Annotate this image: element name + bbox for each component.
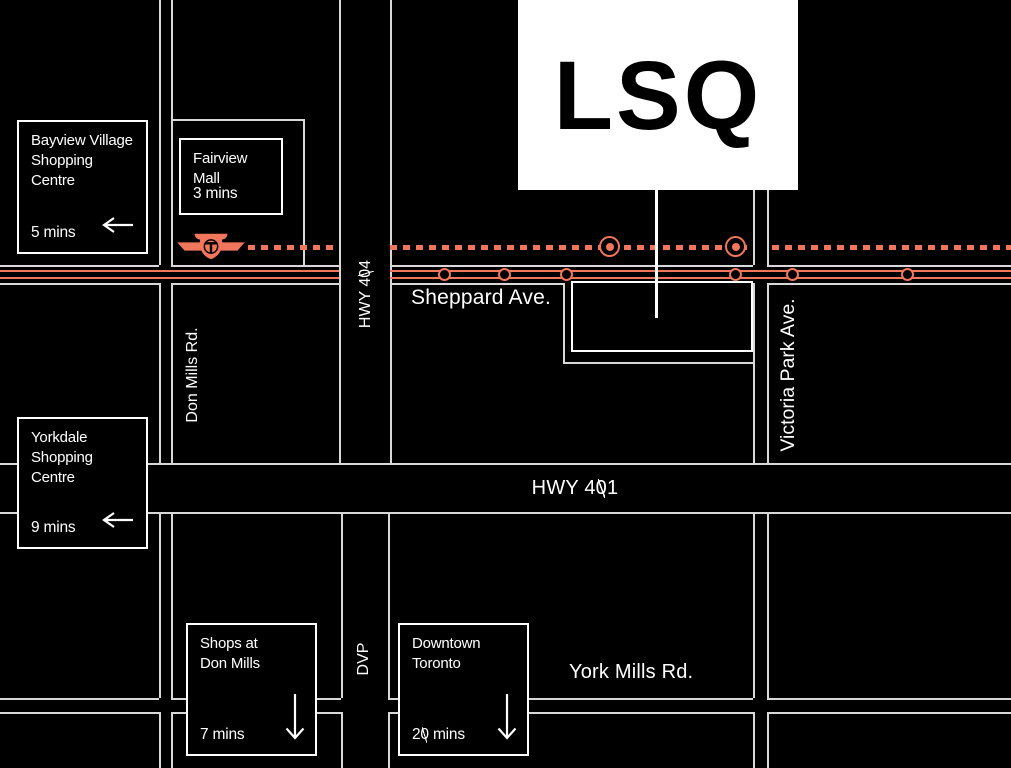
victoria-park-edge [753,190,755,265]
sheppard-ave-line-segment [390,270,1011,272]
road-segment [159,283,161,463]
victoria-park-edge [753,712,755,768]
york-mills-edge [0,698,159,700]
victoria-park-edge [767,712,769,768]
road-segment [303,119,305,266]
sheppard-edge [0,283,159,285]
destination-name: Shops at Don Mills [200,634,307,674]
sheppard-edge [390,265,753,267]
road-segment [159,712,161,768]
road-segment [563,283,565,362]
street-label-sheppard: Sheppard Ave. [411,286,551,310]
lsq-title-box: LSQ [518,0,798,190]
street-label-hwy401: HWY 401 [475,477,675,500]
street-label-don-mills: Don Mills Rd. [180,275,206,475]
hwy404-edge [339,0,341,463]
dvp-edge [388,512,390,698]
subway-line-segment [772,245,1011,250]
victoria-park-edge [767,512,769,698]
destination-name: Bayview Village Shopping Centre [31,131,138,190]
travel-time: 7 mins [200,726,244,744]
victoria-park-edge [753,512,755,698]
sheppard-edge [0,265,159,267]
subway-line-segment [248,245,339,250]
dvp-edge [341,712,343,768]
destination-card-fairview: Fairview Mall 3 mins [179,138,283,215]
road-segment [159,0,161,265]
travel-time: 20 mins [412,726,465,744]
subway-station-marker [599,236,620,257]
subway-station-marker [725,236,746,257]
street-label-hwy404: HWY 404 [353,194,379,394]
york-mills-edge [0,712,159,714]
stop-marker [560,268,573,281]
road-segment [171,0,173,265]
left-arrow-icon [102,216,134,239]
hwy401-edge [0,463,1011,465]
dvp-edge [341,512,343,698]
lsq-logo-text: LSQ [554,47,762,144]
street-label-dvp: DVP [351,559,377,759]
lsq-area-map: LSQ Sheppard Ave. HWY 401 York Mills Rd.… [0,0,1011,768]
lsq-site-outline [571,281,753,352]
road-segment [171,512,173,698]
destination-card-downtown: Downtown Toronto 20 mins [398,623,529,756]
destination-name: Downtown Toronto [412,634,519,674]
travel-time: 9 mins [31,519,75,537]
lsq-leader-line [655,190,658,318]
sheppard-ave-line-segment [0,277,339,279]
road-segment [563,362,753,364]
stop-marker [498,268,511,281]
road-segment [171,712,173,768]
road-segment [172,119,303,121]
ttc-logo [176,231,246,267]
victoria-park-edge [767,283,769,463]
street-label-victoria-park: Victoria Park Ave. [775,275,801,475]
sheppard-ave-line-segment [0,270,339,272]
stop-marker [729,268,742,281]
down-arrow-icon [497,694,517,746]
victoria-park-edge [753,283,755,463]
sheppard-edge [390,283,563,285]
hwy401-edge [0,512,1011,514]
destination-name: Yorkdale Shopping Centre [31,428,138,487]
road-segment [171,283,173,463]
street-label-york-mills: York Mills Rd. [569,661,693,684]
down-arrow-icon [285,694,305,746]
victoria-park-edge [767,190,769,265]
travel-time: 3 mins [193,185,237,203]
dvp-edge [388,712,390,768]
sheppard-edge [767,265,1011,267]
hwy404-edge [390,0,392,463]
destination-card-shops-at-don-mills: Shops at Don Mills 7 mins [186,623,317,756]
left-arrow-icon [102,511,134,534]
sheppard-edge [767,283,1011,285]
york-mills-edge [767,698,1011,700]
york-mills-edge [767,712,1011,714]
subway-line-segment [390,245,747,250]
stop-marker [901,268,914,281]
travel-time: 5 mins [31,224,75,242]
road-segment [159,512,161,698]
destination-name: Fairview Mall [193,149,273,189]
destination-card-yorkdale: Yorkdale Shopping Centre 9 mins [17,417,148,549]
sheppard-ave-line-segment [390,277,1011,279]
stop-marker [438,268,451,281]
destination-card-bayview: Bayview Village Shopping Centre 5 mins [17,120,148,254]
